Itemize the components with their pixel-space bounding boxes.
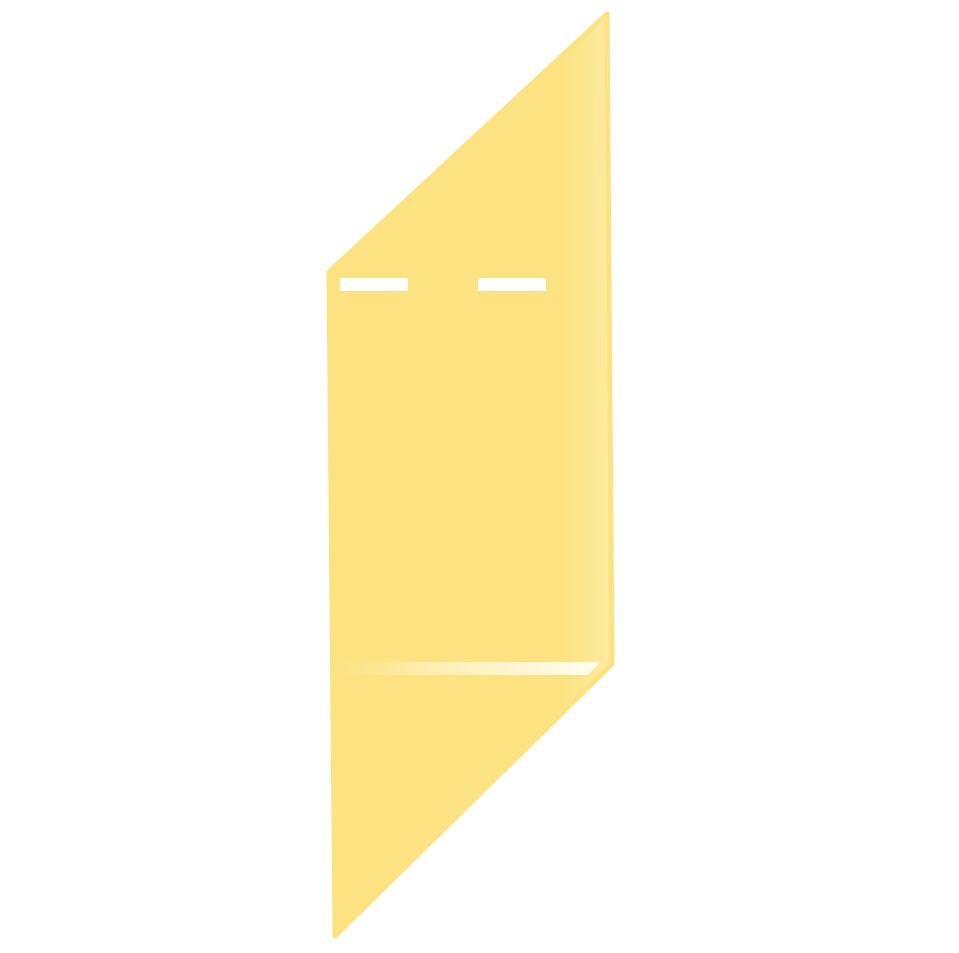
page-background	[0, 0, 959, 953]
note-text-line-1	[340, 278, 408, 291]
note-sheet	[329, 14, 612, 936]
note-text-line-2	[478, 278, 546, 291]
note-divider-line	[337, 662, 600, 675]
sticky-note-graphic	[0, 0, 959, 953]
